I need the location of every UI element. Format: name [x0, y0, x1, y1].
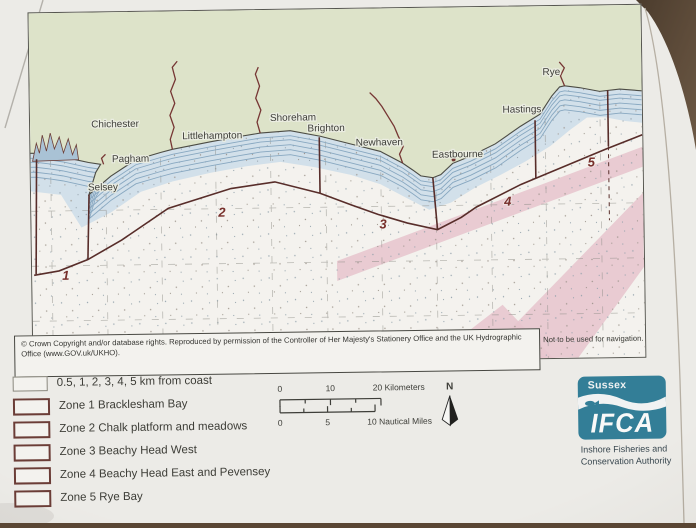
- legend: 0.5, 1, 2, 3, 4, 5 km from coast Zone 1 …: [13, 372, 271, 507]
- zone-label-3: 3: [379, 216, 387, 231]
- legend-swatch-zone5: [14, 490, 51, 508]
- nm-scale-bar: [280, 405, 375, 413]
- zone2-zone3-divider: [319, 137, 320, 193]
- town-label-pagham: Pagham: [112, 154, 149, 166]
- legend-swatch-zone2: [13, 421, 50, 439]
- legend-label-zone3: Zone 3 Beachy Head West: [60, 444, 197, 458]
- sussex-ifca-logo: Sussex IFCA: [578, 375, 667, 439]
- zone-label-2: 2: [217, 205, 226, 220]
- legend-swatch-zone1: [13, 398, 50, 416]
- north-arrow-left-half: [442, 395, 450, 425]
- north-arrow-icon: N: [437, 377, 464, 431]
- logo-acronym: IFCA: [580, 407, 664, 439]
- town-label-shoreham: Shoreham: [270, 112, 316, 124]
- north-label: N: [446, 381, 453, 392]
- town-label-rye: Rye: [542, 67, 560, 78]
- legend-row-zone2: Zone 2 Chalk platform and meadows: [13, 418, 270, 438]
- legend-label-km-bands: 0.5, 1, 2, 3, 4, 5 km from coast: [57, 375, 212, 389]
- photo-of-printed-map: 1 2 3 4 5 Chichester Pagham Selsey Littl…: [0, 0, 696, 523]
- legend-label-zone5: Zone 5 Rye Bay: [60, 491, 143, 504]
- legend-row-zone5: Zone 5 Rye Bay: [14, 487, 271, 507]
- legend-swatch-zone3: [14, 444, 51, 462]
- sussex-coast-map: 1 2 3 4 5 Chichester Pagham Selsey Littl…: [29, 5, 646, 366]
- north-arrow-right-half: [450, 395, 458, 425]
- nm-scale-5: 5: [325, 417, 330, 427]
- logo-subtitle-line2: Conservation Authority: [581, 455, 672, 468]
- km-scale-10: 10: [325, 383, 335, 393]
- copyright-notice: © Crown Copyright and/or database rights…: [14, 328, 541, 377]
- zone-label-1: 1: [62, 268, 69, 283]
- zone-label-5: 5: [588, 154, 596, 169]
- printed-sheet: 1 2 3 4 5 Chichester Pagham Selsey Littl…: [0, 0, 696, 528]
- legend-row-km-bands: 0.5, 1, 2, 3, 4, 5 km from coast: [13, 372, 270, 392]
- legend-swatch-zone4: [14, 467, 51, 485]
- town-label-newhaven: Newhaven: [356, 137, 403, 149]
- zone4-zone5-divider: [535, 120, 536, 178]
- town-label-selsey: Selsey: [88, 182, 118, 193]
- legend-row-zone4: Zone 4 Beachy Head East and Pevensey: [14, 464, 271, 484]
- town-label-littlehampton: Littlehampton: [182, 130, 242, 142]
- town-label-brighton: Brighton: [307, 123, 344, 135]
- legend-label-zone2: Zone 2 Chalk platform and meadows: [59, 420, 247, 435]
- town-label-eastbourne: Eastbourne: [432, 149, 484, 161]
- legend-label-zone1: Zone 1 Bracklesham Bay: [59, 398, 188, 412]
- km-scale-0: 0: [277, 384, 282, 394]
- zone-label-4: 4: [503, 194, 512, 209]
- zone5-east-divider: [608, 90, 609, 146]
- legend-row-zone3: Zone 3 Beachy Head West: [14, 441, 271, 461]
- logo-subtitle: Inshore Fisheries and Conservation Autho…: [581, 443, 672, 467]
- legend-swatch-km-bands: [13, 376, 48, 391]
- logo-subtitle-line1: Inshore Fisheries and: [581, 443, 672, 456]
- legend-row-zone1: Zone 1 Bracklesham Bay: [13, 395, 270, 415]
- town-label-chichester: Chichester: [91, 119, 140, 131]
- km-scale-bar: [280, 398, 381, 406]
- navigation-disclaimer: Not to be used for navigation.: [543, 333, 671, 344]
- town-label-hastings: Hastings: [502, 104, 541, 116]
- legend-label-zone4: Zone 4 Beachy Head East and Pevensey: [60, 466, 270, 481]
- nm-scale-10-unit: 10 Nautical Miles: [367, 416, 432, 427]
- nm-scale-0: 0: [278, 418, 283, 428]
- km-scale-20-unit: 20 Kilometers: [373, 382, 425, 393]
- map-panel: 1 2 3 4 5 Chichester Pagham Selsey Littl…: [27, 4, 646, 367]
